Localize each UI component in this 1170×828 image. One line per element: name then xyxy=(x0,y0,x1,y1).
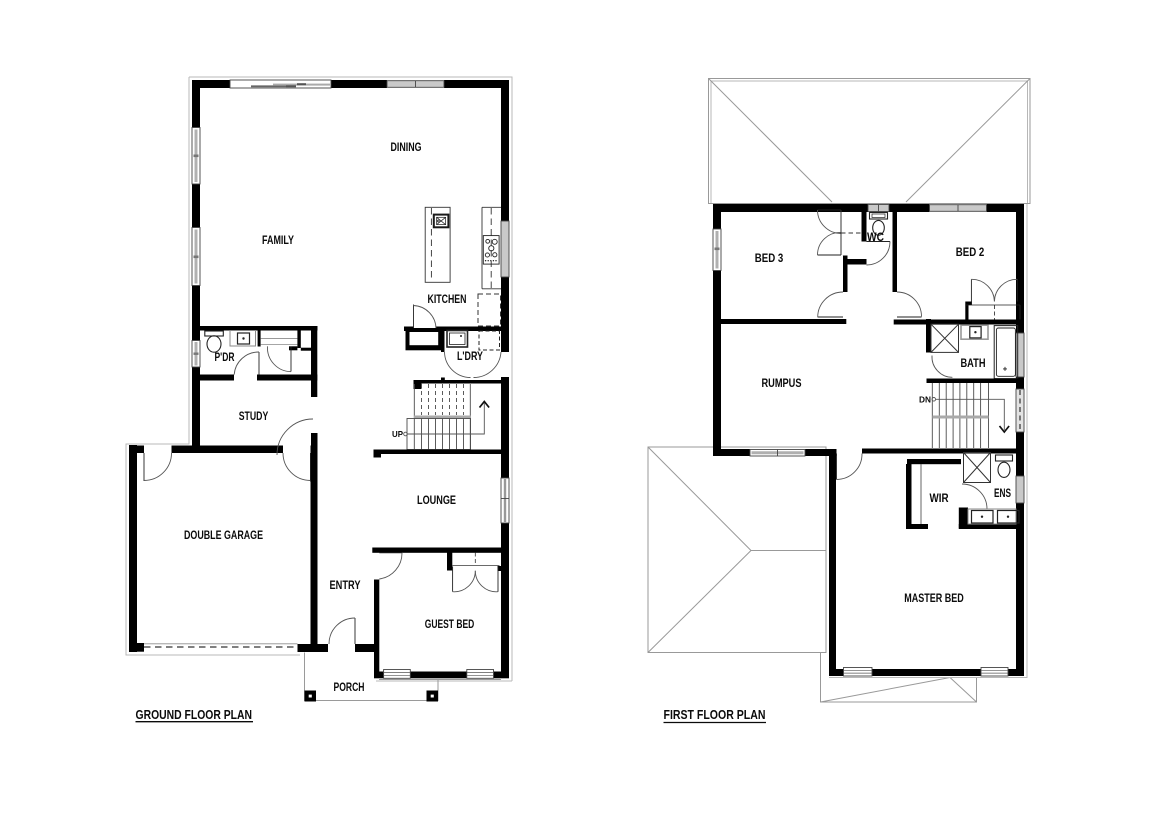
svg-text:PORCH: PORCH xyxy=(334,682,365,694)
svg-text:GUEST BED: GUEST BED xyxy=(425,619,475,631)
svg-text:ENTRY: ENTRY xyxy=(330,580,361,592)
svg-text:STUDY: STUDY xyxy=(239,411,269,423)
svg-text:WIR: WIR xyxy=(930,493,950,505)
svg-text:MASTER BED: MASTER BED xyxy=(904,593,964,605)
svg-text:ENS: ENS xyxy=(994,488,1011,500)
svg-text:BED 2: BED 2 xyxy=(956,247,985,259)
svg-text:GROUND FLOOR PLAN: GROUND FLOOR PLAN xyxy=(136,708,253,722)
svg-text:DN: DN xyxy=(919,395,931,405)
svg-text:FAMILY: FAMILY xyxy=(262,235,294,247)
svg-text:BATH: BATH xyxy=(961,358,986,370)
svg-text:FIRST FLOOR PLAN: FIRST FLOOR PLAN xyxy=(664,708,766,722)
svg-text:DINING: DINING xyxy=(391,142,422,154)
svg-text:UP: UP xyxy=(392,429,403,439)
svg-text:P'DR: P'DR xyxy=(215,352,236,364)
svg-text:BED 3: BED 3 xyxy=(755,253,784,265)
svg-text:LOUNGE: LOUNGE xyxy=(417,495,456,507)
svg-text:L'DRY: L'DRY xyxy=(457,351,483,363)
svg-text:RUMPUS: RUMPUS xyxy=(762,378,802,390)
svg-text:KITCHEN: KITCHEN xyxy=(428,294,467,306)
svg-text:WC: WC xyxy=(867,232,884,244)
svg-text:DOUBLE GARAGE: DOUBLE GARAGE xyxy=(184,530,263,542)
